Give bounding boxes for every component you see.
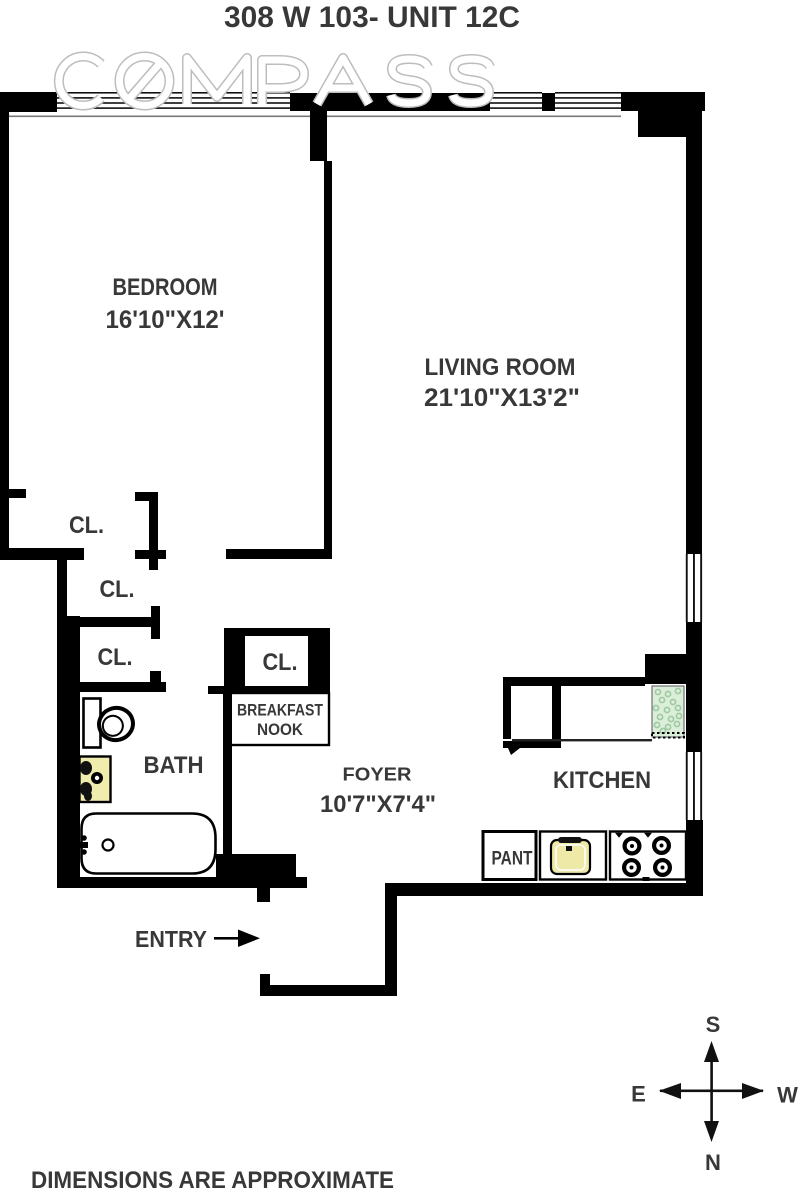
svg-text:LIVING ROOM: LIVING ROOM [425, 354, 576, 381]
svg-text:CL.: CL. [98, 644, 133, 671]
svg-text:N: N [705, 1150, 721, 1175]
svg-text:NOOK: NOOK [257, 721, 303, 739]
svg-text:CL.: CL. [263, 649, 298, 676]
svg-text:E: E [631, 1082, 646, 1107]
svg-text:ENTRY: ENTRY [135, 926, 207, 952]
svg-text:10'7"X7'4": 10'7"X7'4" [320, 791, 436, 818]
svg-text:BEDROOM: BEDROOM [113, 274, 218, 301]
svg-text:16'10"X12': 16'10"X12' [106, 306, 225, 334]
svg-text:BREAKFAST: BREAKFAST [237, 702, 323, 720]
svg-text:KITCHEN: KITCHEN [553, 767, 651, 794]
svg-text:BATH: BATH [144, 752, 204, 779]
svg-text:DIMENSIONS ARE APPROXIMATE: DIMENSIONS ARE APPROXIMATE [31, 1167, 394, 1194]
svg-text:CL.: CL. [100, 576, 135, 603]
svg-text:FOYER: FOYER [343, 764, 412, 785]
svg-text:S: S [706, 1012, 721, 1037]
svg-text:CL.: CL. [69, 512, 104, 539]
svg-text:PANT: PANT [492, 849, 533, 870]
svg-text:308 W 103- UNIT 12C: 308 W 103- UNIT 12C [224, 1, 520, 34]
svg-text:21'10"X13'2": 21'10"X13'2" [424, 384, 580, 412]
svg-text:W: W [777, 1083, 798, 1108]
